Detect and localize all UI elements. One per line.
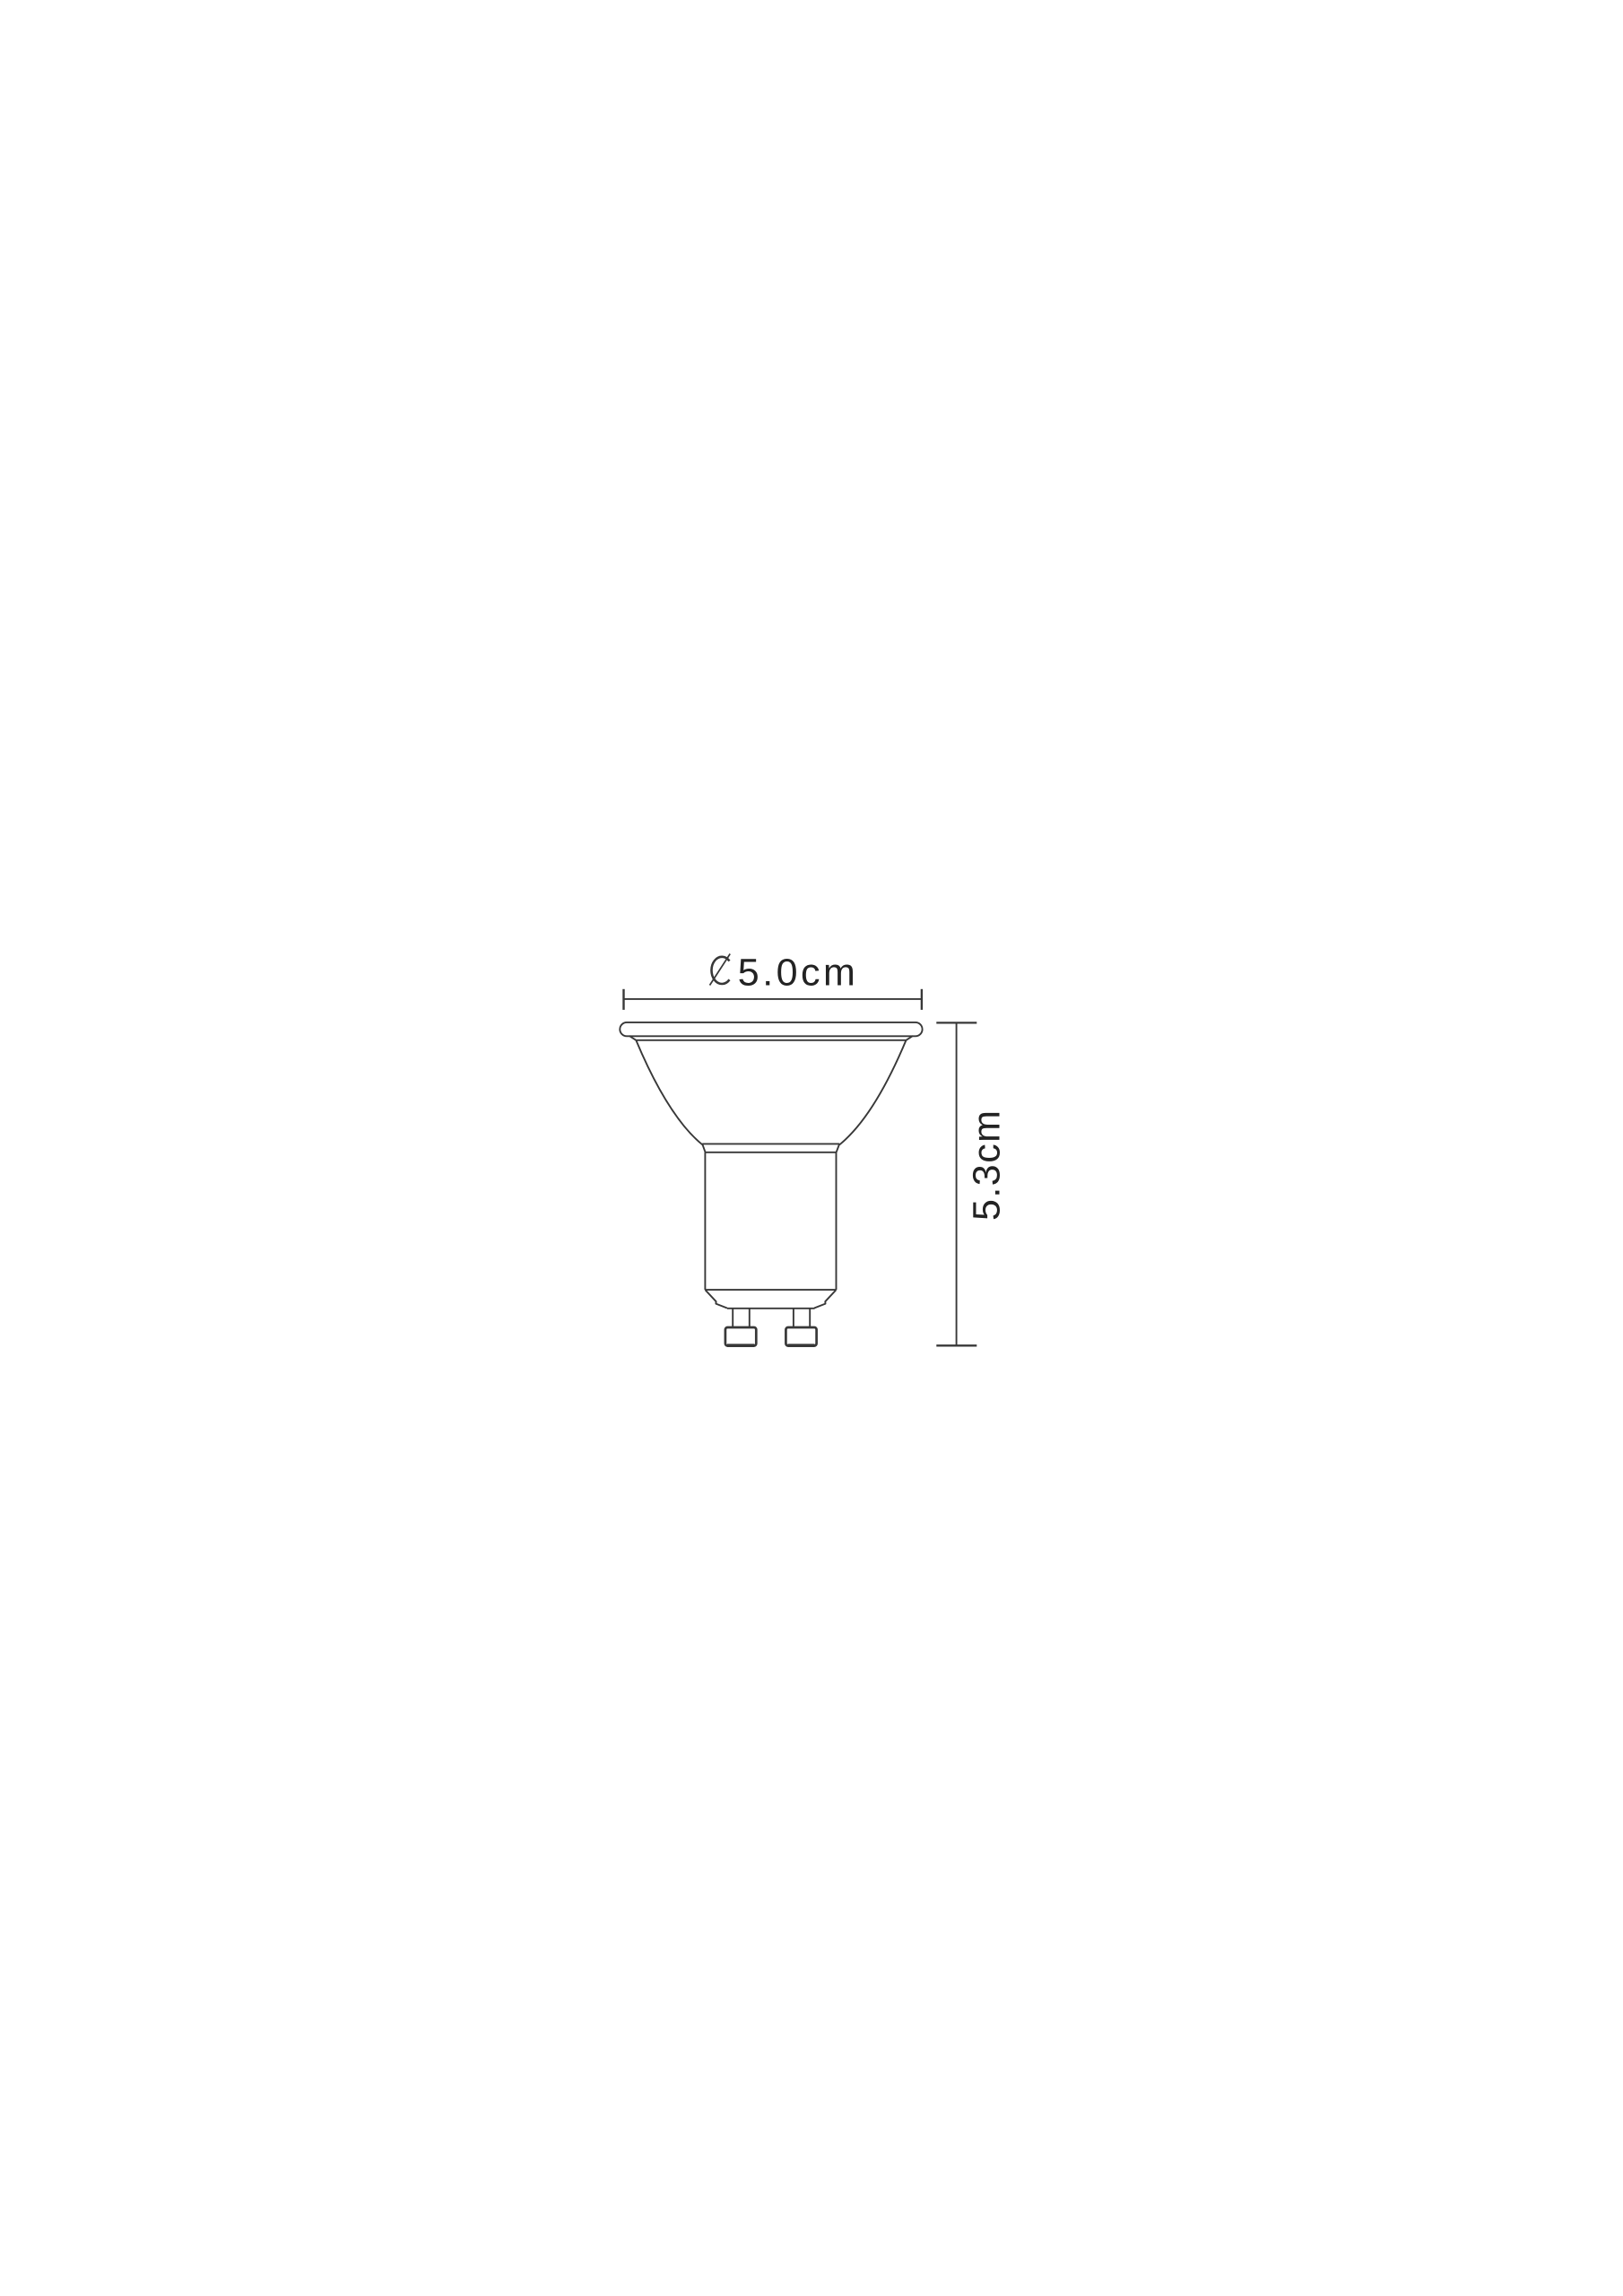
svg-text:5.3cm: 5.3cm bbox=[966, 1110, 1009, 1221]
svg-text:5.0cm: 5.0cm bbox=[738, 951, 855, 994]
